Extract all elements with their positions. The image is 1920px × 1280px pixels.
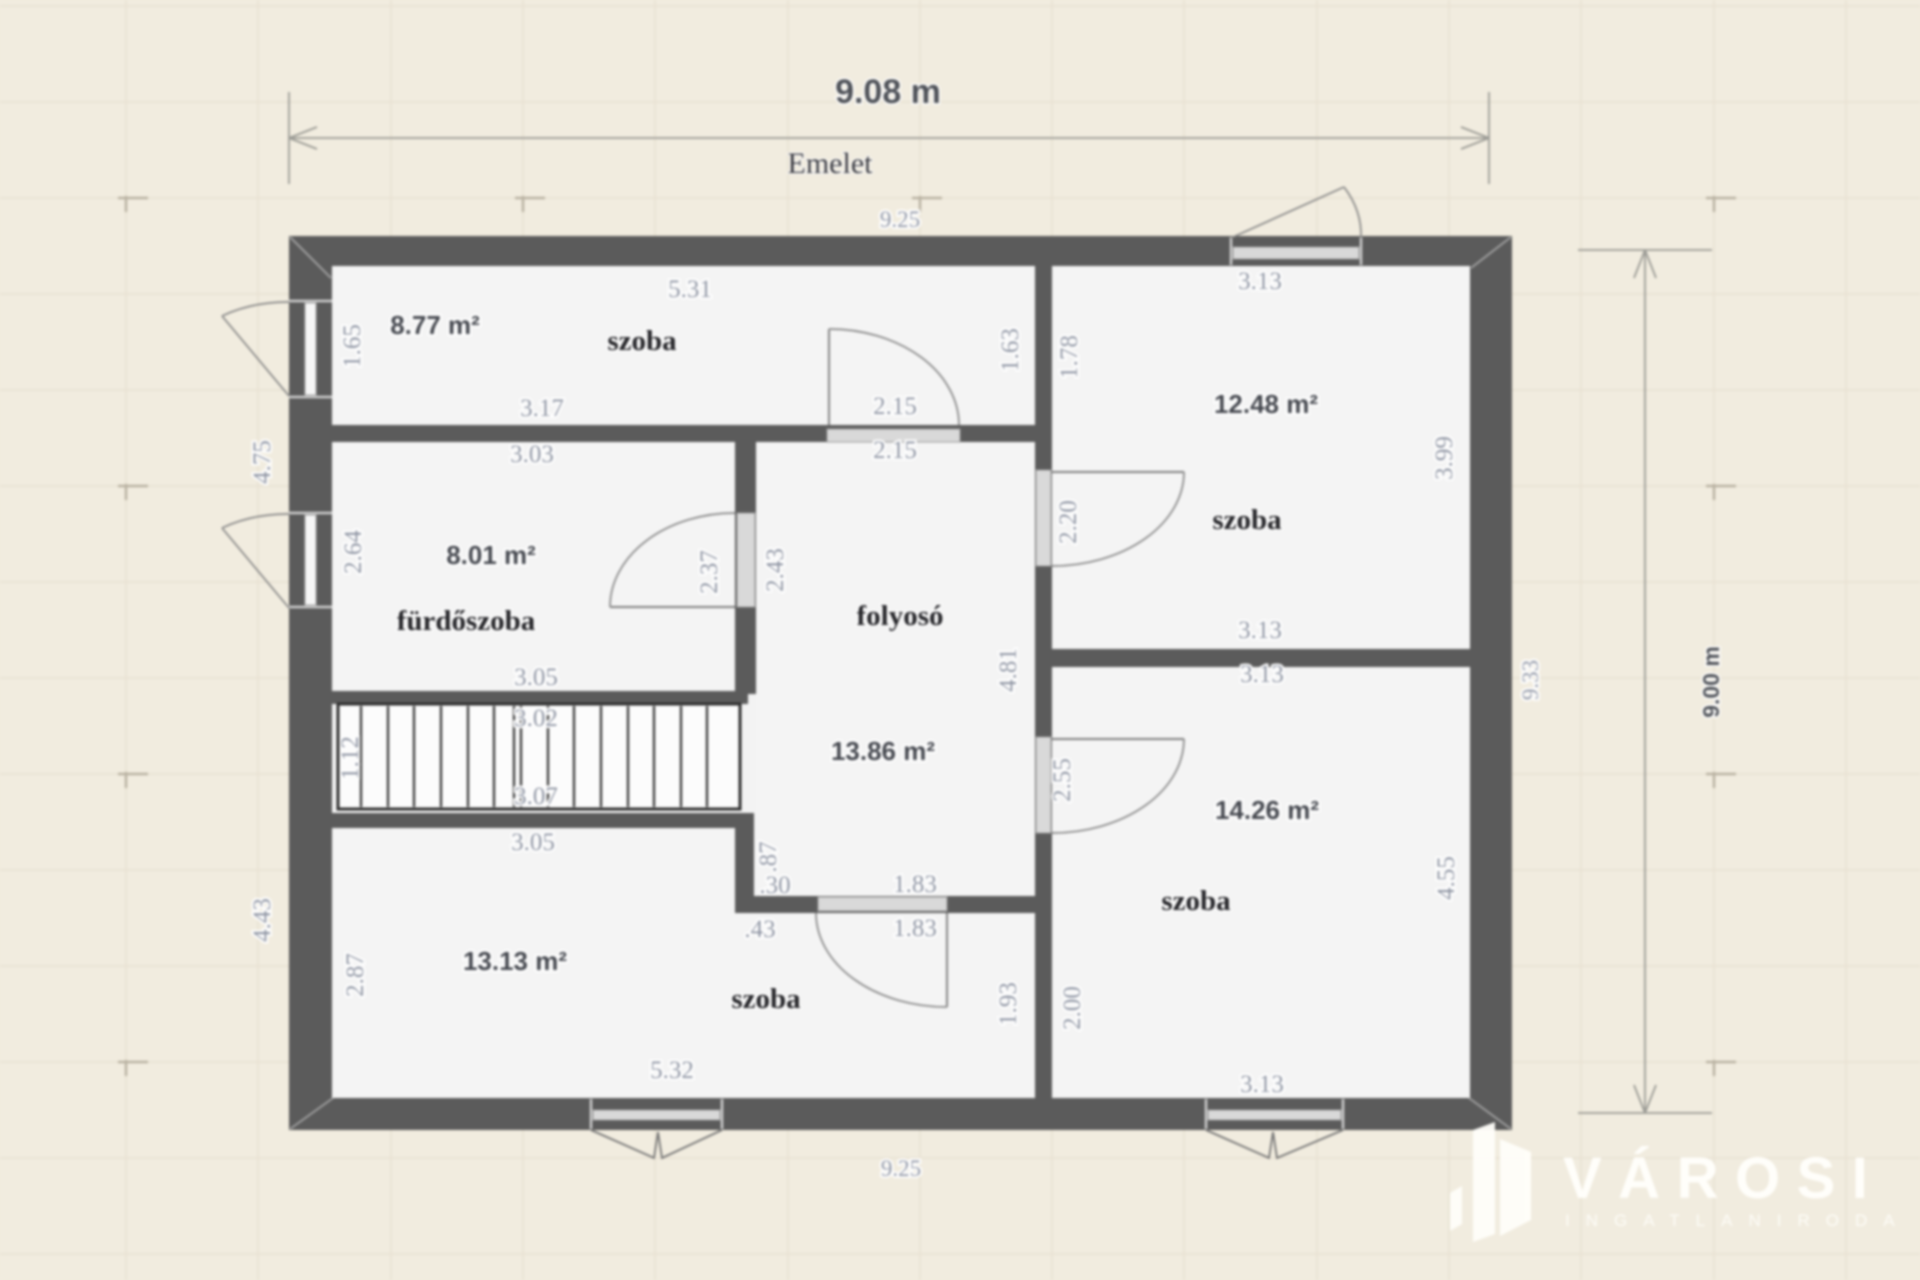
svg-text:szoba: szoba	[1212, 504, 1282, 536]
svg-text:3.07: 3.07	[514, 783, 558, 810]
svg-text:VÁROSI: VÁROSI	[1563, 1146, 1884, 1211]
svg-text:.87: .87	[755, 841, 782, 872]
svg-text:3.13: 3.13	[1240, 661, 1284, 688]
svg-text:3.99: 3.99	[1431, 436, 1458, 480]
svg-text:8.01 m²: 8.01 m²	[446, 540, 536, 570]
svg-text:4.75: 4.75	[249, 440, 276, 484]
svg-text:2.15: 2.15	[873, 437, 917, 464]
svg-text:3.02: 3.02	[514, 705, 558, 732]
svg-text:9.00 m: 9.00 m	[1698, 646, 1724, 718]
svg-text:1.83: 1.83	[893, 871, 937, 898]
svg-text:8.77 m²: 8.77 m²	[390, 310, 480, 340]
svg-text:3.17: 3.17	[520, 395, 564, 422]
svg-text:szoba: szoba	[731, 983, 801, 1015]
svg-text:Emelet: Emelet	[788, 147, 874, 180]
svg-text:szoba: szoba	[607, 325, 677, 357]
svg-text:13.86 m²: 13.86 m²	[831, 736, 935, 766]
svg-text:3.13: 3.13	[1238, 268, 1282, 295]
svg-text:2.15: 2.15	[873, 393, 917, 420]
svg-text:4.55: 4.55	[1433, 856, 1460, 900]
svg-text:3.05: 3.05	[511, 829, 555, 856]
svg-text:9.33: 9.33	[1518, 660, 1543, 700]
svg-text:2.64: 2.64	[340, 530, 367, 574]
svg-text:1.93: 1.93	[995, 982, 1022, 1026]
svg-text:3.05: 3.05	[514, 664, 558, 691]
svg-text:fürdőszoba: fürdőszoba	[397, 605, 536, 637]
svg-text:2.20: 2.20	[1055, 500, 1082, 544]
svg-text:12.48 m²: 12.48 m²	[1214, 389, 1318, 419]
svg-text:2.55: 2.55	[1049, 758, 1076, 802]
svg-text:2.00: 2.00	[1059, 986, 1086, 1030]
svg-text:9.08 m: 9.08 m	[835, 73, 941, 111]
svg-text:INGATLANIRODA: INGATLANIRODA	[1565, 1211, 1911, 1230]
svg-text:1.83: 1.83	[893, 915, 937, 942]
svg-text:14.26 m²: 14.26 m²	[1215, 795, 1319, 825]
svg-text:13.13 m²: 13.13 m²	[463, 946, 567, 976]
svg-text:2.37: 2.37	[696, 550, 723, 594]
svg-text:1.63: 1.63	[997, 328, 1024, 372]
svg-text:4.81: 4.81	[995, 648, 1022, 692]
svg-text:9.25: 9.25	[881, 1156, 921, 1181]
svg-text:3.03: 3.03	[510, 441, 554, 468]
svg-text:.30: .30	[759, 872, 790, 899]
svg-text:1.65: 1.65	[339, 324, 366, 368]
svg-text:3.13: 3.13	[1240, 1071, 1284, 1098]
svg-text:folyosó: folyosó	[857, 600, 944, 632]
svg-text:1.12: 1.12	[337, 736, 364, 780]
svg-text:9.25: 9.25	[880, 207, 920, 232]
svg-text:4.43: 4.43	[249, 898, 276, 942]
svg-text:.43: .43	[744, 916, 775, 943]
svg-text:2.43: 2.43	[762, 548, 789, 592]
svg-text:2.87: 2.87	[342, 953, 369, 997]
svg-text:5.31: 5.31	[668, 276, 712, 303]
svg-text:szoba: szoba	[1161, 885, 1231, 917]
svg-text:5.32: 5.32	[650, 1057, 694, 1084]
svg-text:1.78: 1.78	[1056, 335, 1083, 379]
svg-text:3.13: 3.13	[1238, 617, 1282, 644]
